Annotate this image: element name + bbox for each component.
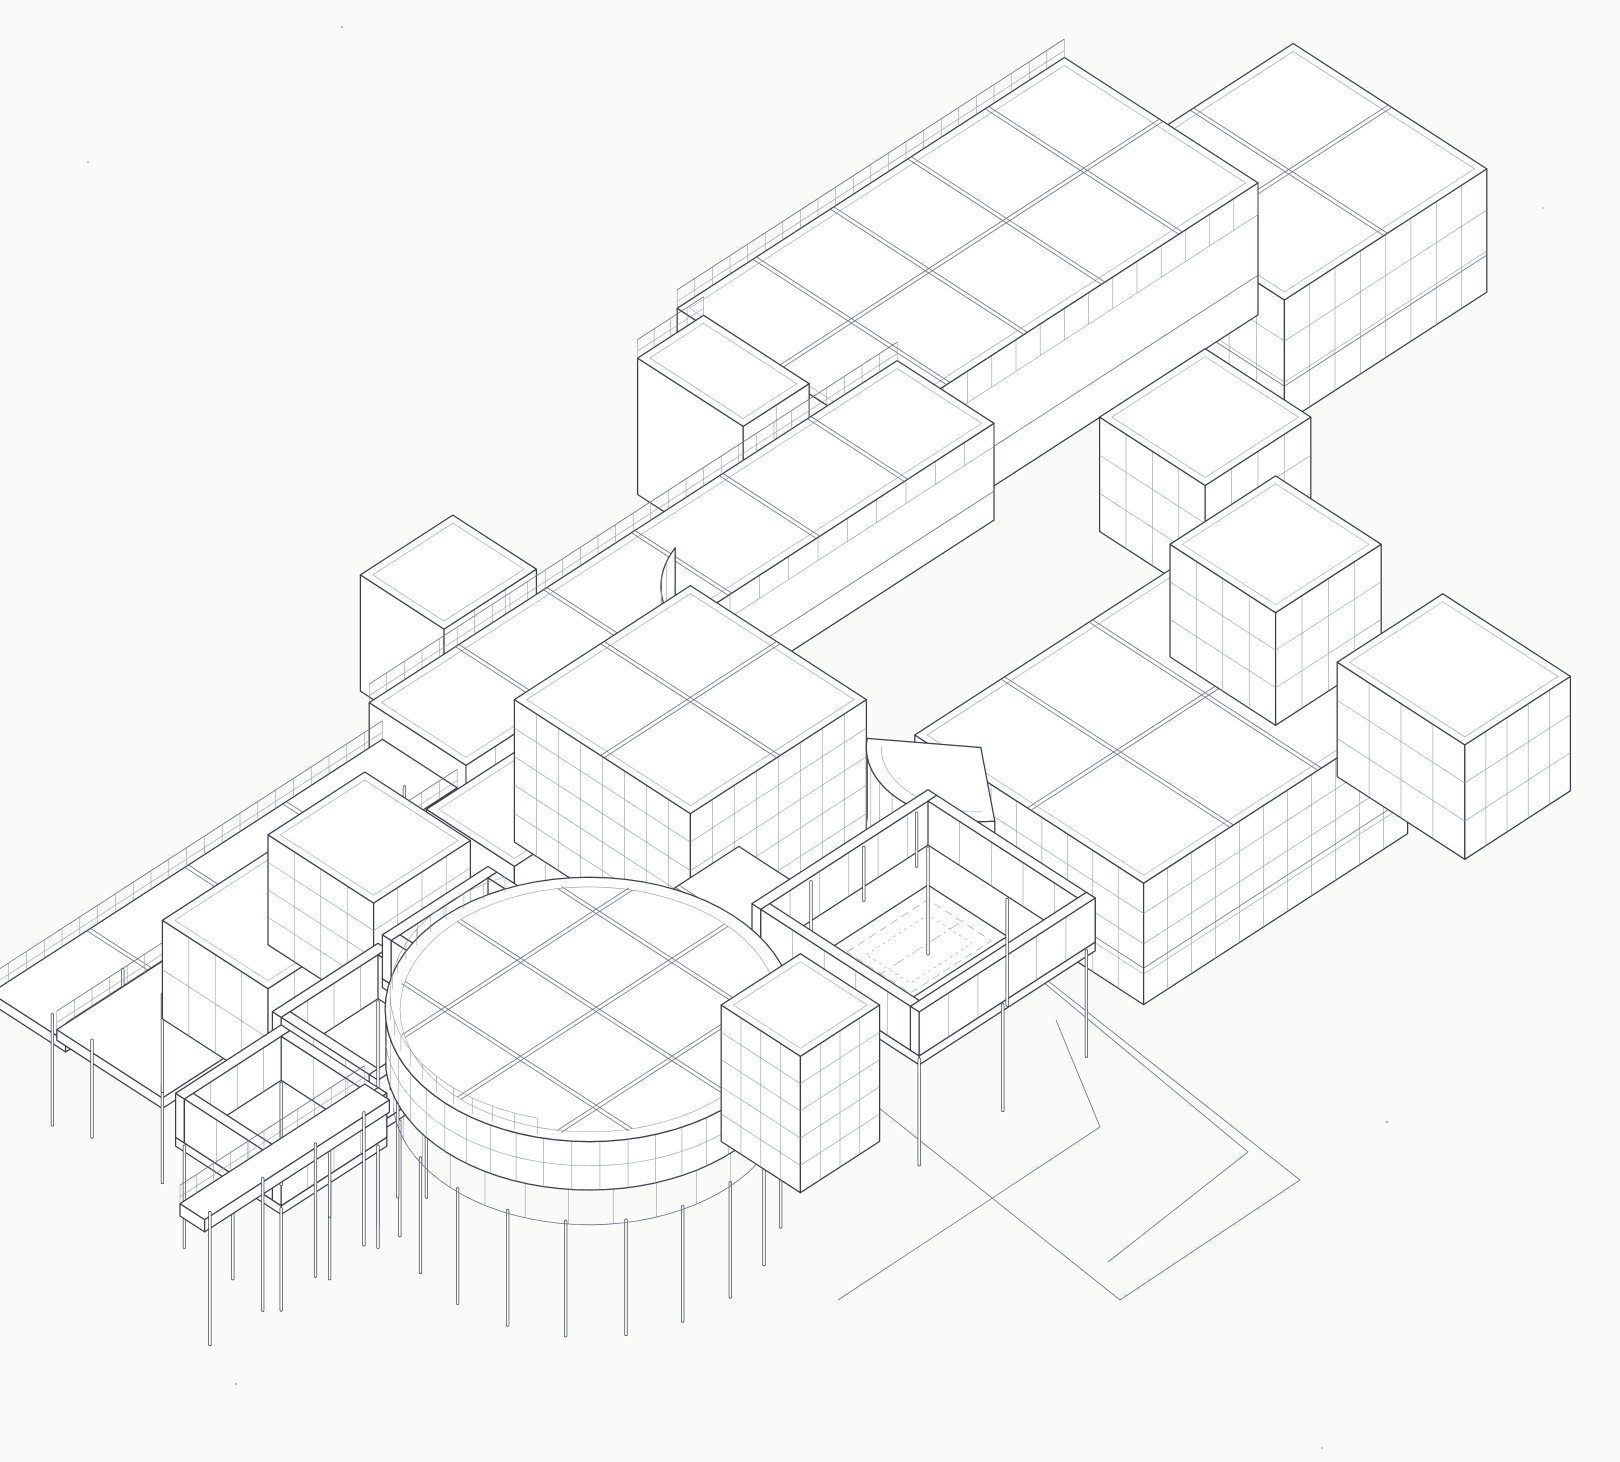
paper-speckle [1321,1447,1323,1449]
axonometric-drawing [0,0,1620,1462]
paper-speckle [87,161,89,163]
paper-speckle [1386,1121,1389,1124]
paper-speckle [1542,207,1544,209]
drawing-page [0,0,1620,1462]
paper-speckle [341,26,343,28]
rotunda-core-block [721,954,879,1193]
paper-speckle [235,1383,237,1385]
